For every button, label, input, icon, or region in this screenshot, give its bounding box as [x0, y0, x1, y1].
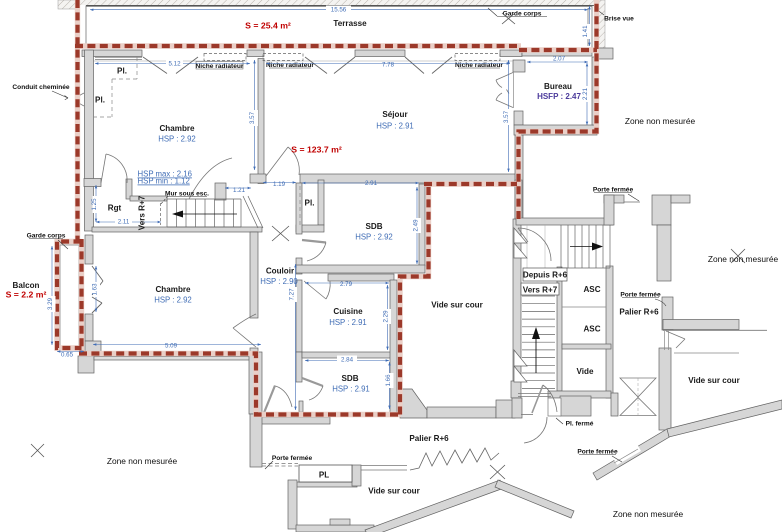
svg-text:Vers R+7: Vers R+7 [523, 286, 558, 295]
svg-text:Conduit cheminée: Conduit cheminée [12, 84, 69, 91]
svg-text:3.57: 3.57 [249, 111, 256, 124]
svg-text:Porte fermée: Porte fermée [272, 455, 313, 462]
svg-text:7.27: 7.27 [289, 288, 296, 301]
svg-text:5.09: 5.09 [165, 343, 178, 350]
svg-text:1.66: 1.66 [385, 374, 392, 387]
svg-text:Pl.: Pl. [305, 199, 315, 208]
svg-text:3.29: 3.29 [47, 297, 54, 310]
svg-text:Terrasse: Terrasse [333, 19, 367, 28]
svg-text:Zone non mesurée: Zone non mesurée [107, 456, 178, 466]
svg-text:Palier R+6: Palier R+6 [409, 434, 449, 443]
svg-text:2.84: 2.84 [341, 357, 354, 364]
svg-text:Vide sur cour: Vide sur cour [431, 301, 483, 310]
svg-text:5.12: 5.12 [168, 61, 181, 68]
svg-text:Brise vue: Brise vue [604, 16, 634, 23]
svg-text:1.21: 1.21 [233, 187, 246, 194]
svg-text:Couloir: Couloir [266, 267, 295, 276]
svg-text:1.63: 1.63 [92, 283, 99, 296]
svg-text:Vide: Vide [577, 367, 594, 376]
svg-text:Séjour: Séjour [382, 110, 408, 119]
svg-text:Pl. fermé: Pl. fermé [566, 421, 594, 428]
svg-text:HSP : 2.90: HSP : 2.90 [260, 277, 298, 286]
svg-text:Cuisine: Cuisine [333, 307, 363, 316]
svg-text:HSP : 2.92: HSP : 2.92 [158, 135, 196, 144]
svg-text:Vide sur cour: Vide sur cour [368, 487, 420, 496]
svg-text:HSP : 2.91: HSP : 2.91 [376, 122, 414, 131]
svg-text:2.29: 2.29 [383, 310, 390, 323]
svg-text:Rgt: Rgt [108, 204, 122, 213]
svg-text:2.91: 2.91 [365, 180, 378, 187]
svg-text:S = 25.4 m²: S = 25.4 m² [245, 21, 291, 31]
svg-text:Pl.: Pl. [117, 67, 127, 76]
svg-text:2.21: 2.21 [582, 87, 589, 100]
svg-text:Depuis R+6: Depuis R+6 [523, 271, 568, 280]
svg-text:ASC: ASC [583, 285, 600, 294]
svg-text:2.07: 2.07 [553, 56, 566, 63]
svg-text:1.25: 1.25 [91, 198, 98, 211]
svg-text:HSP min : 1.12: HSP min : 1.12 [138, 177, 190, 186]
svg-text:Zone non mesurée: Zone non mesurée [708, 254, 779, 264]
svg-text:Niche radiateur: Niche radiateur [195, 63, 243, 70]
svg-text:S = 2.2 m²: S = 2.2 m² [6, 290, 47, 300]
svg-text:Vers R+7: Vers R+7 [138, 195, 147, 230]
svg-text:Zone non mesurée: Zone non mesurée [613, 509, 684, 519]
svg-text:S = 123.7 m²: S = 123.7 m² [291, 145, 342, 155]
svg-text:SDB: SDB [365, 222, 382, 231]
svg-text:2.49: 2.49 [413, 219, 420, 232]
svg-text:HSP : 2.91: HSP : 2.91 [329, 318, 367, 327]
svg-text:ASC: ASC [583, 325, 600, 334]
svg-text:Chambre: Chambre [159, 124, 195, 133]
svg-text:PL: PL [319, 471, 329, 480]
svg-text:1.19: 1.19 [273, 181, 286, 188]
svg-text:1.41: 1.41 [582, 25, 589, 38]
svg-text:15.56: 15.56 [331, 7, 347, 14]
svg-text:Pl.: Pl. [95, 96, 105, 105]
svg-text:Vide sur cour: Vide sur cour [688, 376, 740, 385]
svg-text:Zone non mesurée: Zone non mesurée [625, 116, 696, 126]
svg-text:2.79: 2.79 [340, 281, 353, 288]
svg-text:3.57: 3.57 [503, 110, 510, 123]
svg-text:0.65: 0.65 [61, 352, 74, 359]
svg-text:Chambre: Chambre [155, 285, 191, 294]
svg-text:2.11: 2.11 [118, 219, 130, 226]
svg-text:HSP : 2.91: HSP : 2.91 [332, 385, 370, 394]
svg-text:SDB: SDB [341, 374, 358, 383]
svg-text:7.78: 7.78 [382, 62, 395, 69]
svg-text:Bureau: Bureau [544, 82, 572, 91]
svg-text:HSP : 2.92: HSP : 2.92 [355, 233, 393, 242]
svg-text:HSP : 2.92: HSP : 2.92 [154, 296, 192, 305]
svg-text:Palier R+6: Palier R+6 [619, 308, 659, 317]
svg-text:HSFP : 2.47: HSFP : 2.47 [537, 92, 581, 101]
